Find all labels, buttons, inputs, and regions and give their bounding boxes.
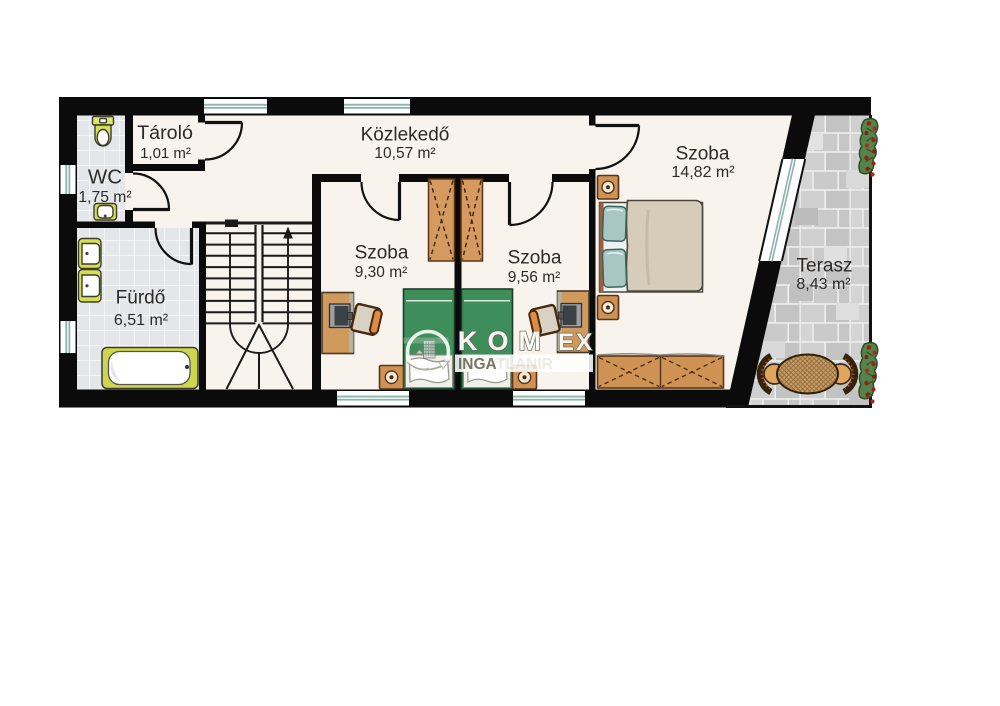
svg-text:Szoba: Szoba (676, 144, 730, 165)
svg-text:Terasz: Terasz (797, 256, 853, 277)
svg-text:EX: EX (558, 329, 594, 356)
svg-text:1,75 m²: 1,75 m² (78, 189, 131, 206)
svg-text:9,56 m²: 9,56 m² (508, 269, 561, 286)
svg-text:14,82 m²: 14,82 m² (671, 164, 735, 181)
svg-text:TLANIR: TLANIR (496, 356, 553, 373)
svg-text:KOM: KOM (458, 326, 551, 356)
svg-text:Tároló: Tároló (137, 122, 193, 144)
svg-text:WC: WC (88, 166, 122, 189)
svg-text:9,30 m²: 9,30 m² (355, 264, 408, 281)
svg-text:8,43 m²: 8,43 m² (796, 276, 851, 293)
svg-text:Szoba: Szoba (508, 248, 562, 269)
svg-text:Szoba: Szoba (355, 243, 409, 264)
svg-text:1,01 m²: 1,01 m² (140, 145, 191, 162)
svg-text:INGA: INGA (458, 356, 497, 373)
svg-text:6,51 m²: 6,51 m² (114, 312, 169, 329)
svg-text:10,57 m²: 10,57 m² (374, 145, 435, 162)
svg-text:Fürdő: Fürdő (116, 288, 166, 309)
svg-text:Közlekedő: Közlekedő (361, 125, 450, 146)
